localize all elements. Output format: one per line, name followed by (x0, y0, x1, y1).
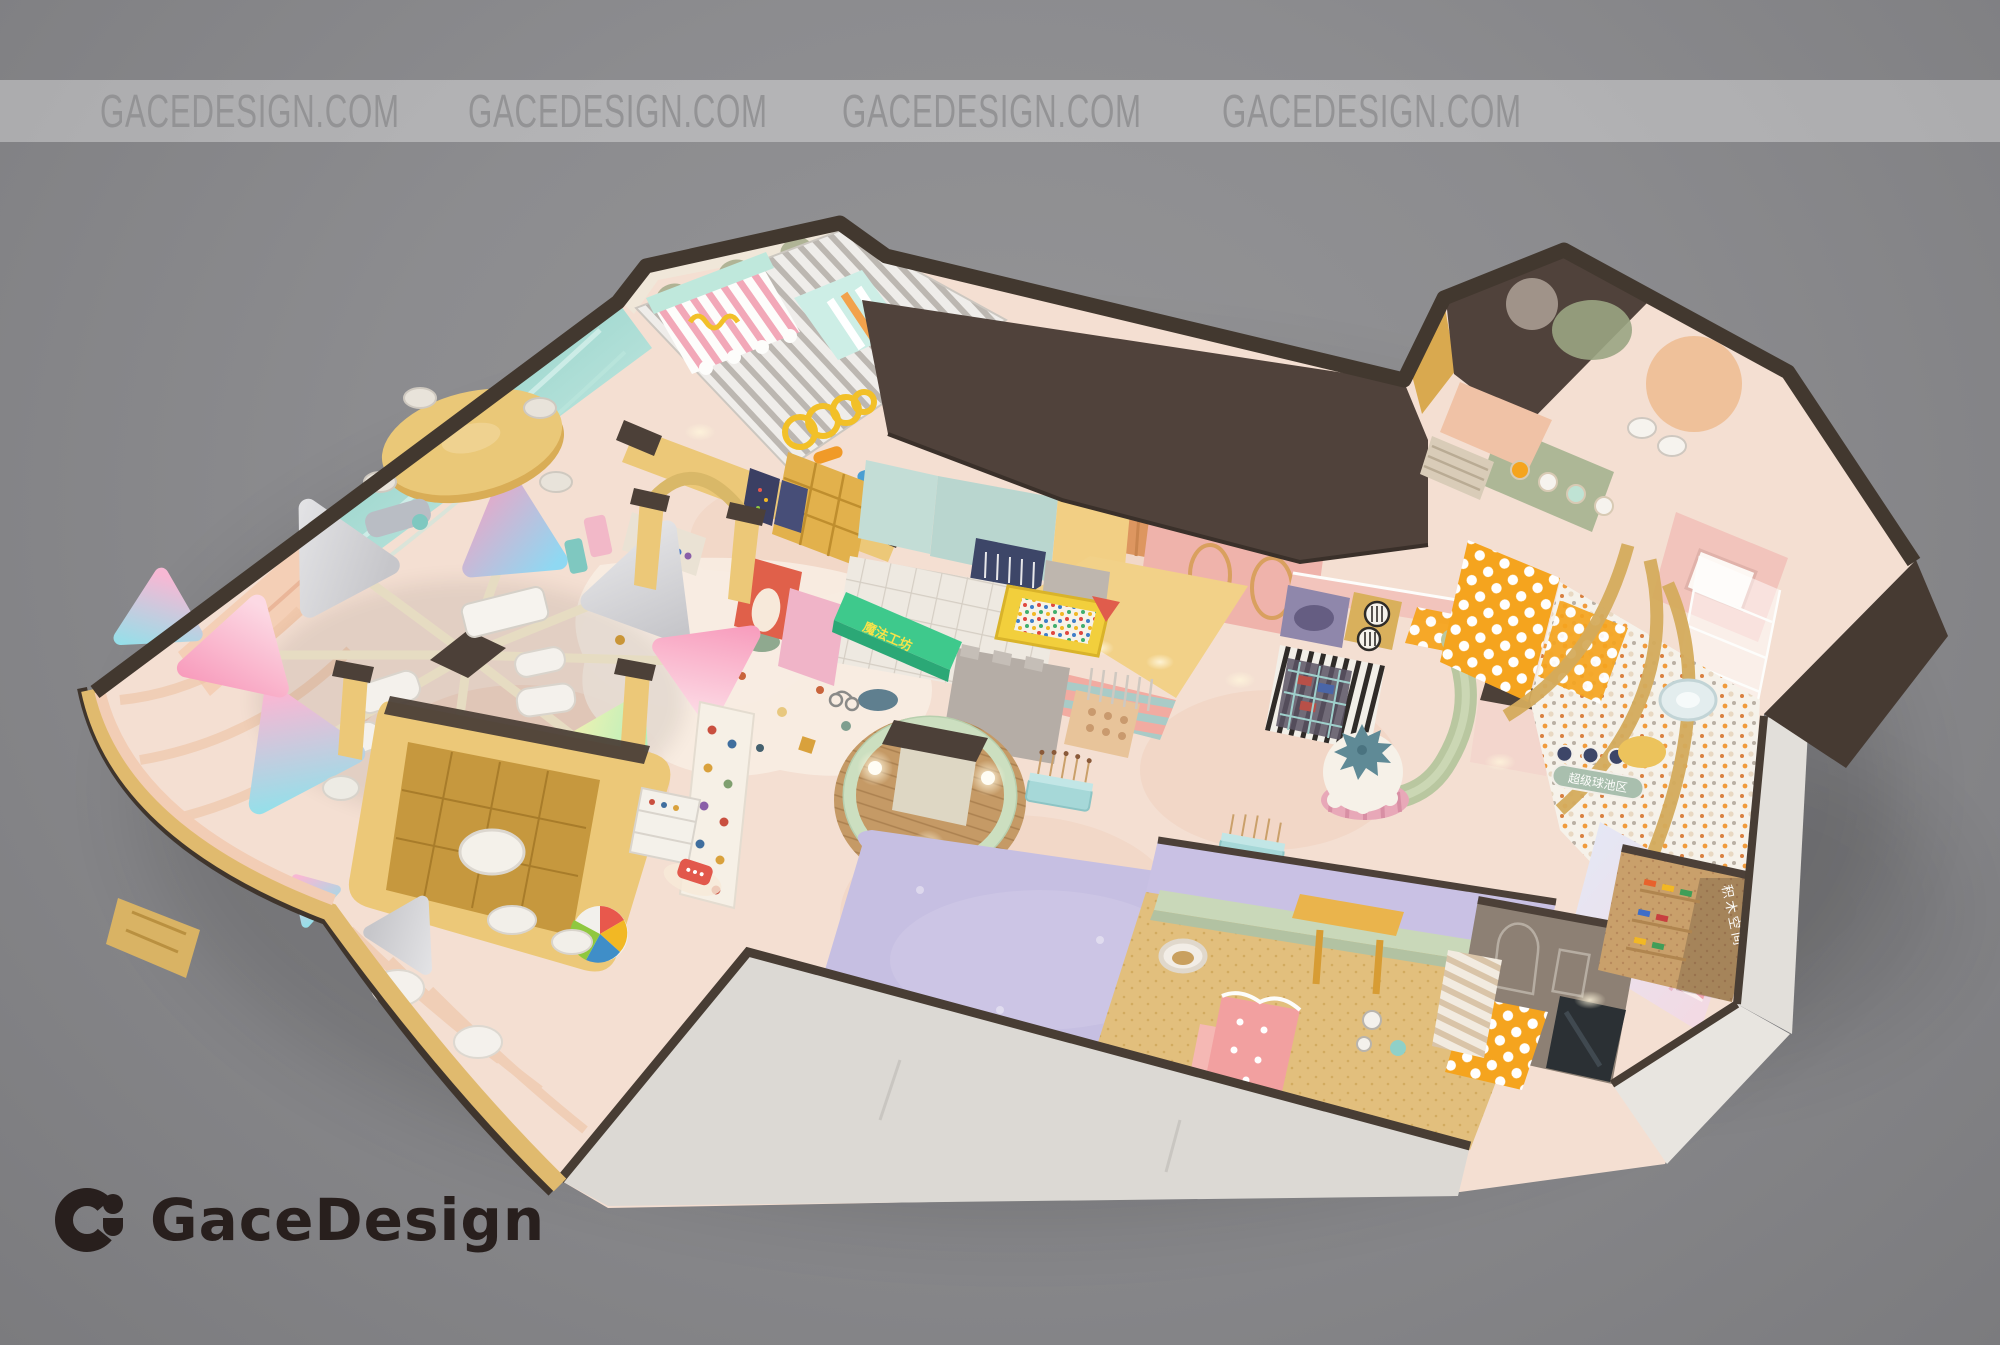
brand-logo-text: GaceDesign (150, 1186, 545, 1254)
brand-logo-icon (54, 1184, 126, 1256)
floorplan-render: 魔法工坊 (0, 0, 2000, 1345)
watermark-banner: GACEDESIGN.COM GACEDESIGN.COM GACEDESIGN… (0, 80, 2000, 142)
white-shelf (630, 788, 700, 864)
round-table-white (460, 830, 524, 874)
dish-rack (1276, 658, 1352, 740)
yellow-stool (1618, 736, 1666, 768)
brand-logo: GaceDesign (54, 1184, 545, 1256)
watermark-text: GACEDESIGN.COM (1222, 80, 1522, 142)
watermark-text: GACEDESIGN.COM (100, 80, 400, 142)
watermark-text: GACEDESIGN.COM (468, 80, 768, 142)
watermark-text: GACEDESIGN.COM (842, 80, 1142, 142)
render-canvas: 魔法工坊 (0, 0, 2000, 1345)
